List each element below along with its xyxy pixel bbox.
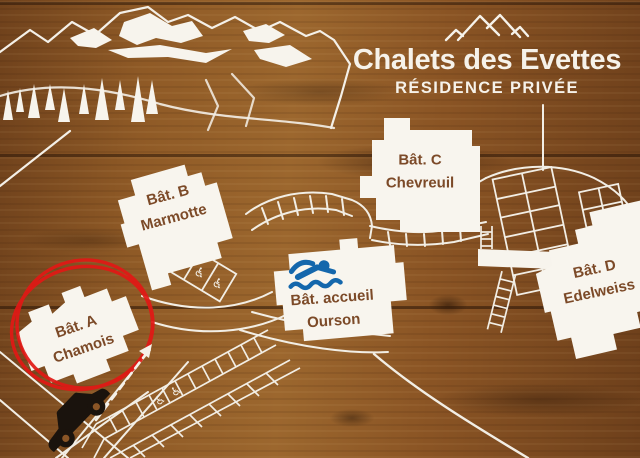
stairs-path bbox=[481, 226, 516, 333]
building-label-chevreuil: Bât. C Chevreuil bbox=[386, 150, 454, 195]
mountain-peaks-icon bbox=[442, 8, 532, 44]
walkway bbox=[478, 249, 556, 269]
wheelchair-icon: ♿ bbox=[209, 275, 227, 294]
parking-band-lower bbox=[110, 360, 300, 458]
wheelchair-icon: ♿ bbox=[191, 264, 209, 283]
building-subname: Chevreuil bbox=[386, 172, 454, 195]
sign-title-block: Chalets des Evettes RÉSIDENCE PRIVÉE bbox=[336, 8, 638, 98]
sign-subtitle: RÉSIDENCE PRIVÉE bbox=[336, 79, 638, 98]
pine-trees-icon bbox=[3, 76, 158, 122]
sign-title: Chalets des Evettes bbox=[336, 45, 638, 75]
wooden-map-board: ♿ ♿ bbox=[0, 0, 640, 458]
building-label-ourson: Bât. accueil Ourson bbox=[290, 285, 376, 336]
building-name: Bât. C bbox=[386, 150, 454, 173]
snow-patches bbox=[70, 13, 312, 67]
